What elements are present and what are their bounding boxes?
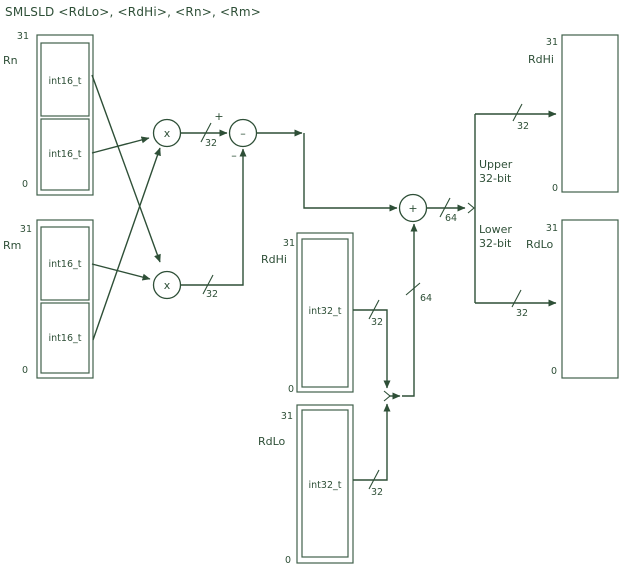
slash-upper-32 bbox=[513, 104, 522, 121]
wire-rdlo-src-to-join bbox=[353, 404, 387, 480]
multiplier-1-glyph: x bbox=[164, 127, 171, 140]
register-rdlo-source: 31 RdLo 0 int32_t bbox=[258, 405, 353, 566]
bus-32-rdhi-src: 32 bbox=[371, 317, 383, 328]
wire-diff-to-adder bbox=[304, 133, 397, 208]
subtractor-glyph: – bbox=[240, 127, 246, 140]
rdhi-dst-name-label: RdHi bbox=[528, 53, 554, 66]
result-annotations: Upper 32-bit Lower 32-bit bbox=[479, 158, 513, 250]
rm-name-label: Rm bbox=[3, 239, 21, 252]
slash-acc-64 bbox=[406, 283, 420, 295]
subtractor-minus-sign: – bbox=[231, 149, 237, 162]
adder-glyph: + bbox=[408, 202, 417, 215]
rn-outer-box bbox=[37, 35, 93, 195]
rdhi-src-name-label: RdHi bbox=[261, 253, 287, 266]
smlsld-instruction-diagram: SMLSLD <RdLo>, <RdHi>, <Rn>, <Rm> 31 Rn … bbox=[0, 0, 619, 569]
rm-lsb-label: 0 bbox=[22, 365, 28, 376]
rdlo-src-field-type: int32_t bbox=[309, 480, 342, 491]
rdhi-dst-box bbox=[562, 35, 618, 192]
register-rdhi-source: 31 RdHi 0 int32_t bbox=[261, 233, 353, 395]
rm-msb-label: 31 bbox=[20, 224, 32, 235]
rdlo-dst-name-label: RdLo bbox=[526, 238, 554, 251]
upper-32bit-label-line2: 32-bit bbox=[479, 172, 512, 185]
upper-32bit-label-line1: Upper bbox=[479, 158, 513, 171]
register-rn: 31 Rn 0 int16_t int16_t bbox=[3, 31, 93, 195]
wire-rn-low-to-mul1 bbox=[92, 138, 149, 153]
rdhi-dst-msb-label: 31 bbox=[546, 37, 558, 48]
bus-32-rdlo-src: 32 bbox=[371, 487, 383, 498]
rn-high-field-type: int16_t bbox=[49, 76, 82, 87]
bus-64-adder-out: 64 bbox=[445, 213, 457, 224]
rdlo-src-msb-label: 31 bbox=[281, 411, 293, 422]
bus-split-mark bbox=[468, 203, 474, 213]
rdhi-src-msb-label: 31 bbox=[283, 238, 295, 249]
rm-outer-box bbox=[37, 220, 93, 378]
multiplier-2-glyph: x bbox=[164, 279, 171, 292]
rn-low-field-type: int16_t bbox=[49, 149, 82, 160]
rn-name-label: Rn bbox=[3, 54, 18, 67]
lower-32bit-label-line2: 32-bit bbox=[479, 237, 512, 250]
rdlo-dst-lsb-label: 0 bbox=[551, 366, 557, 377]
rdhi-src-field-type: int32_t bbox=[309, 306, 342, 317]
bus-32-mul1: 32 bbox=[205, 138, 217, 149]
rm-low-field-type: int16_t bbox=[49, 333, 82, 344]
bus-64-acc: 64 bbox=[420, 293, 432, 304]
instruction-syntax: SMLSLD <RdLo>, <RdHi>, <Rn>, <Rm> bbox=[5, 5, 261, 19]
diagram-canvas: SMLSLD <RdLo>, <RdHi>, <Rn>, <Rm> 31 Rn … bbox=[0, 0, 619, 569]
rdhi-dst-lsb-label: 0 bbox=[552, 183, 558, 194]
wire-acc-to-adder bbox=[402, 224, 414, 396]
bus-32-lower: 32 bbox=[516, 308, 528, 319]
lower-32bit-label-line1: Lower bbox=[479, 223, 512, 236]
bus-32-mul2: 32 bbox=[206, 289, 218, 300]
rn-msb-label: 31 bbox=[17, 31, 29, 42]
register-rdlo-destination: 31 RdLo 0 bbox=[526, 220, 618, 378]
wire-rn-high-to-mul2 bbox=[92, 75, 160, 262]
subtractor-plus-sign: + bbox=[214, 110, 223, 123]
rdlo-src-name-label: RdLo bbox=[258, 435, 286, 448]
rdlo-src-lsb-label: 0 bbox=[285, 555, 291, 566]
slash-lower-32 bbox=[512, 290, 521, 307]
bus-width-marks bbox=[201, 104, 522, 489]
bus-32-upper: 32 bbox=[517, 121, 529, 132]
rm-high-field-type: int16_t bbox=[49, 259, 82, 270]
register-rm: 31 Rm 0 int16_t int16_t bbox=[3, 220, 93, 378]
rdlo-dst-msb-label: 31 bbox=[546, 223, 558, 234]
wire-rm-low-to-mul1 bbox=[93, 148, 160, 340]
rdhi-src-lsb-label: 0 bbox=[288, 384, 294, 395]
wire-mul2-to-sub bbox=[181, 149, 243, 285]
wire-rm-high-to-mul2 bbox=[92, 264, 150, 279]
rn-lsb-label: 0 bbox=[22, 179, 28, 190]
operator-nodes: x x – + + – bbox=[154, 110, 427, 299]
rdlo-dst-box bbox=[562, 220, 618, 378]
